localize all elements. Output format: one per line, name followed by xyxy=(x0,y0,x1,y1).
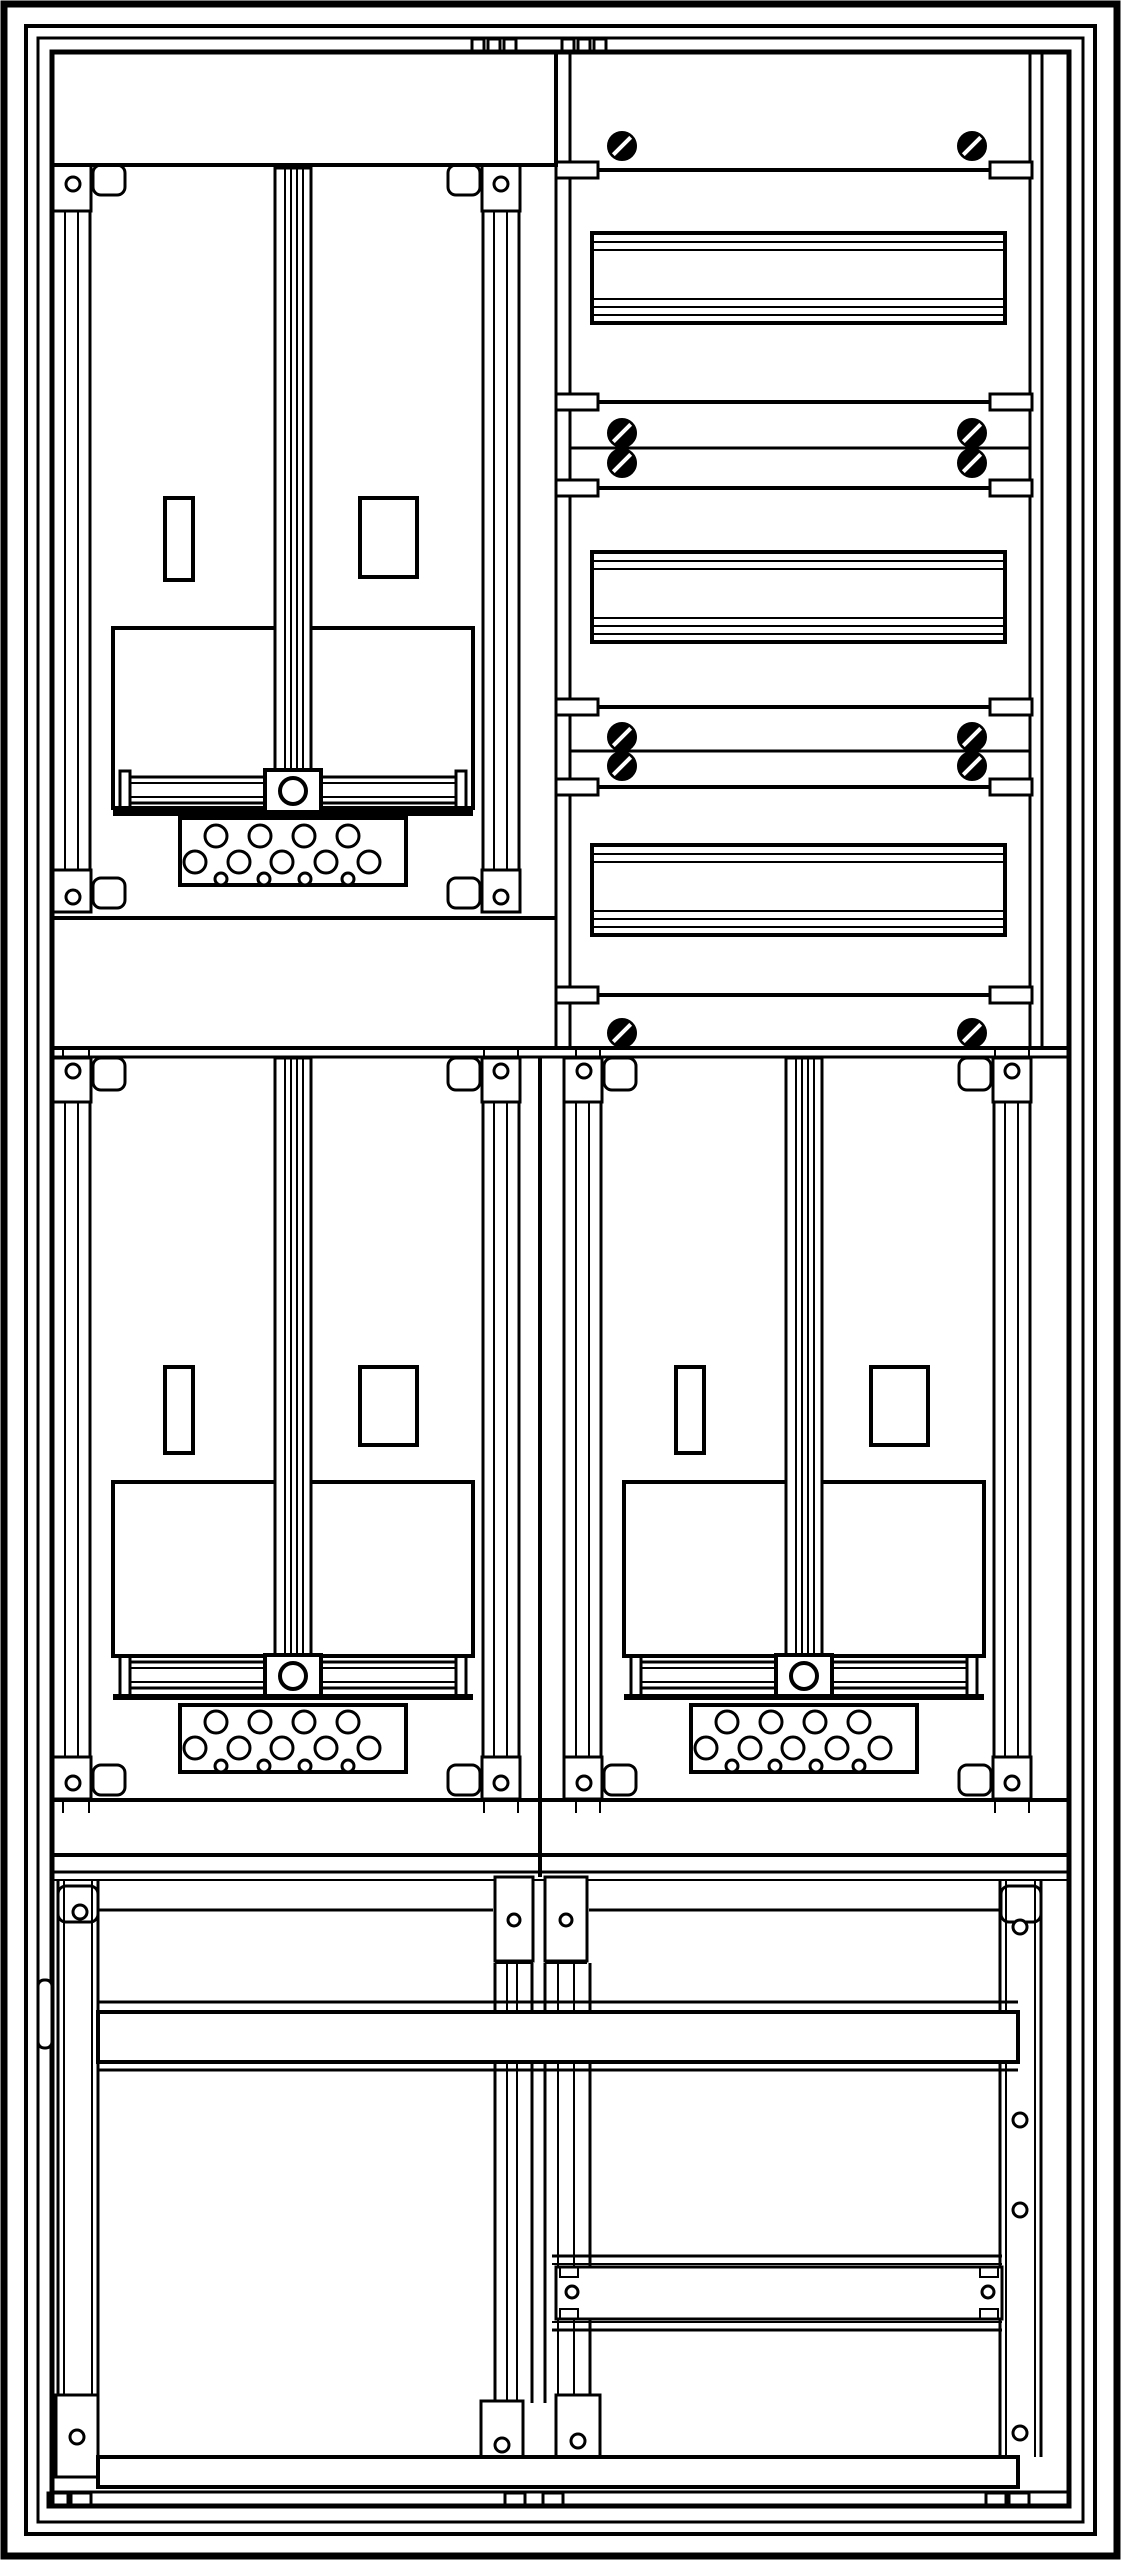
bracket-hole xyxy=(66,177,80,191)
separator-end-tab xyxy=(990,394,1032,410)
terminal-hole xyxy=(205,1711,227,1733)
terminal-hole xyxy=(358,851,380,873)
terminal-hole xyxy=(760,1711,782,1733)
meter-panel-top xyxy=(52,52,556,165)
terminal-hole xyxy=(804,1711,826,1733)
center-rail xyxy=(275,168,311,772)
terminal-hole xyxy=(271,1737,293,1759)
clamp-screw-hole xyxy=(791,1663,817,1689)
bracket-hole xyxy=(566,2286,578,2298)
terminal-hole xyxy=(695,1737,717,1759)
din-rail xyxy=(592,233,1005,323)
terminal-hole xyxy=(293,1711,315,1733)
mounting-tab-top xyxy=(594,39,606,51)
mounting-tab-top xyxy=(504,39,516,51)
terminal-hole xyxy=(249,825,271,847)
mounting-tab-top xyxy=(488,39,500,51)
separator-end-tab xyxy=(990,162,1032,178)
separator-end-tab xyxy=(990,987,1032,1003)
terminal-hole xyxy=(782,1737,804,1759)
clamp-end xyxy=(456,1656,466,1696)
bracket-hole xyxy=(1005,1776,1019,1790)
clamp-end xyxy=(967,1656,977,1696)
terminal-hole xyxy=(716,1711,738,1733)
terminal-hole xyxy=(228,851,250,873)
terminal-hole xyxy=(337,1711,359,1733)
terminal-hole xyxy=(358,1737,380,1759)
center-rail xyxy=(275,1058,311,1655)
terminal-hole-small xyxy=(258,1760,270,1772)
bracket-tab xyxy=(448,1058,480,1090)
bracket-hole xyxy=(494,177,508,191)
bracket-tab xyxy=(93,165,125,195)
center-rail xyxy=(786,1058,822,1655)
terminal-hole xyxy=(869,1737,891,1759)
clamp-end xyxy=(120,1656,130,1696)
separator-end-tab xyxy=(556,987,598,1003)
mounting-tab-top xyxy=(578,39,590,51)
bracket-hole xyxy=(494,1064,508,1078)
bracket-hole xyxy=(1013,2113,1027,2127)
meter-window xyxy=(165,498,193,580)
bracket-hole xyxy=(1013,1920,1027,1934)
separator-end-tab xyxy=(556,779,598,795)
bracket-hole xyxy=(982,2286,994,2298)
terminal-hole-small xyxy=(726,1760,738,1772)
bracket-hole xyxy=(577,1776,591,1790)
terminal-hole xyxy=(315,1737,337,1759)
meter-window xyxy=(871,1367,928,1445)
terminal-hole xyxy=(249,1711,271,1733)
terminal-hole-small xyxy=(258,873,270,885)
bracket-tab xyxy=(959,1765,991,1795)
terminal-hole-small xyxy=(342,1760,354,1772)
separator-end-tab xyxy=(556,699,598,715)
clamp-screw-hole xyxy=(280,778,306,804)
terminal-hole xyxy=(205,825,227,847)
terminal-hole-small xyxy=(299,1760,311,1772)
terminal-hole xyxy=(739,1737,761,1759)
din-rail xyxy=(592,552,1005,642)
terminal-hole-small xyxy=(810,1760,822,1772)
terminal-hole-small xyxy=(215,1760,227,1772)
separator-end-tab xyxy=(990,480,1032,496)
clamp-screw-hole xyxy=(280,1663,306,1689)
bracket-hole xyxy=(66,1776,80,1790)
bracket-hole xyxy=(494,1776,508,1790)
bracket-hole xyxy=(73,1905,87,1919)
terminal-hole xyxy=(293,825,315,847)
bracket-tab xyxy=(448,1765,480,1795)
terminal-hole xyxy=(337,825,359,847)
bracket-hole xyxy=(560,1914,572,1926)
terminal-hole xyxy=(184,1737,206,1759)
meter-window xyxy=(676,1367,704,1453)
mounting-tab-top xyxy=(472,39,484,51)
bracket-tab xyxy=(448,878,480,908)
bracket-hole xyxy=(1013,2203,1027,2217)
meter-window xyxy=(165,1367,193,1453)
cabinet-svg-canvas xyxy=(0,0,1121,2560)
separator-end-tab xyxy=(556,162,598,178)
terminal-hole xyxy=(228,1737,250,1759)
terminal-hole-small xyxy=(342,873,354,885)
bracket-tab xyxy=(604,1058,636,1090)
din-rail xyxy=(592,845,1005,935)
separator-end-tab xyxy=(556,394,598,410)
bracket-hole xyxy=(66,1064,80,1078)
separator-end-tab xyxy=(990,779,1032,795)
lower-rail-plate xyxy=(556,2267,1002,2319)
cabinet-inner-frame xyxy=(52,52,1069,2506)
cross-beam xyxy=(98,2012,1018,2062)
terminal-hole xyxy=(848,1711,870,1733)
bracket-tab xyxy=(959,1058,991,1090)
bottom-bar xyxy=(98,2457,1018,2487)
clamp-end xyxy=(631,1656,641,1696)
mounting-tab-top xyxy=(562,39,574,51)
bracket-tab xyxy=(604,1765,636,1795)
terminal-hole xyxy=(315,851,337,873)
door-hinge xyxy=(38,1980,52,2048)
bracket-tab xyxy=(93,1058,125,1090)
meter-window xyxy=(360,498,417,577)
bracket-hole xyxy=(70,2430,84,2444)
bracket-tab xyxy=(93,878,125,908)
terminal-hole-small xyxy=(853,1760,865,1772)
meter-cabinet-drawing xyxy=(0,0,1121,2560)
meter-window xyxy=(360,1367,417,1445)
terminal-hole xyxy=(184,851,206,873)
bracket-hole xyxy=(1013,2426,1027,2440)
bracket-hole xyxy=(508,1914,520,1926)
terminal-hole xyxy=(826,1737,848,1759)
bracket-hole xyxy=(494,890,508,904)
cabinet-outer-border xyxy=(4,4,1117,2556)
bracket-tab xyxy=(448,165,480,195)
bracket-hole xyxy=(577,1064,591,1078)
terminal-hole xyxy=(271,851,293,873)
terminal-hole-small xyxy=(299,873,311,885)
bracket-hole xyxy=(571,2434,585,2448)
separator-end-tab xyxy=(556,480,598,496)
bracket-hole xyxy=(66,890,80,904)
bracket-hole xyxy=(1005,1064,1019,1078)
terminal-hole-small xyxy=(769,1760,781,1772)
bracket-tab xyxy=(93,1765,125,1795)
separator-end-tab xyxy=(990,699,1032,715)
bracket-hole xyxy=(495,2438,509,2452)
terminal-hole-small xyxy=(215,873,227,885)
